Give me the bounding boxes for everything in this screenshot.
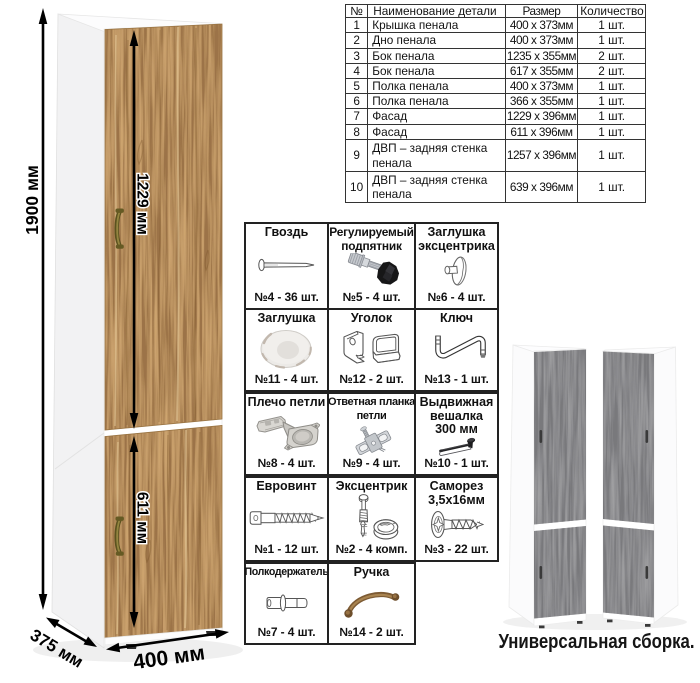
svg-text:1229 мм: 1229 мм <box>134 173 151 235</box>
svg-text:1900 мм: 1900 мм <box>22 165 42 235</box>
svg-text:611 мм: 611 мм <box>134 492 151 544</box>
svg-text:Универсальная сборка.: Универсальная сборка. <box>499 630 695 653</box>
